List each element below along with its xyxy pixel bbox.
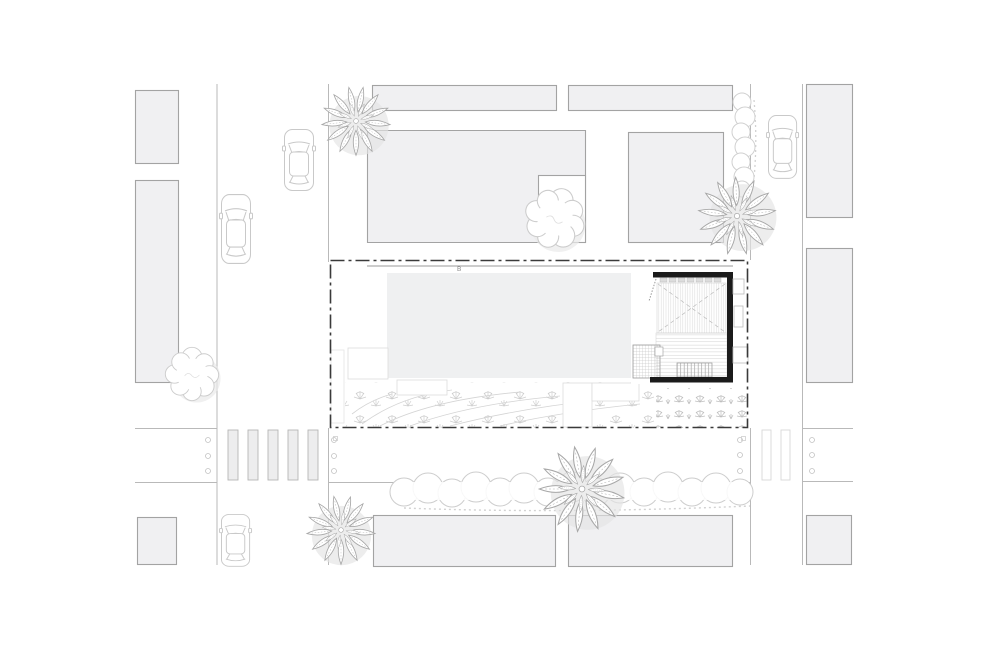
car-icon — [283, 130, 316, 191]
crosswalk-right — [762, 430, 790, 480]
existing-slab — [387, 273, 635, 378]
terrace-hatch-box — [655, 347, 663, 356]
section-marker-label: B — [457, 266, 461, 273]
glazing-strip — [660, 278, 721, 282]
building — [136, 91, 179, 164]
building — [807, 516, 852, 565]
building — [138, 518, 177, 565]
project-site: B — [331, 261, 751, 441]
building — [374, 516, 556, 567]
building — [569, 86, 733, 111]
car-icon — [220, 514, 252, 566]
boundary-corner-marks — [334, 437, 746, 441]
building — [373, 86, 557, 111]
stair — [677, 363, 712, 377]
site-plan-drawing: B — [0, 0, 1000, 647]
site-plan-canvas: B — [0, 0, 1000, 647]
building — [807, 85, 853, 218]
car-icon — [220, 195, 253, 264]
car-icon — [767, 116, 799, 179]
crosswalk-left — [228, 430, 318, 480]
building — [807, 249, 853, 383]
project-building-plan — [631, 269, 750, 384]
faint-structure-outline — [331, 350, 344, 423]
building — [136, 181, 179, 383]
